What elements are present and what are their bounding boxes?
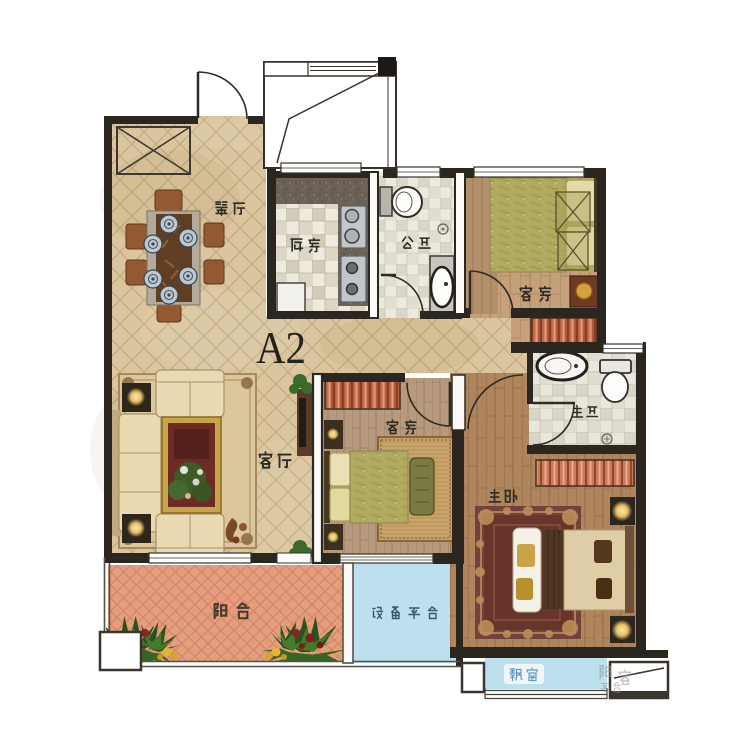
svg-text:A2: A2 <box>256 322 306 373</box>
